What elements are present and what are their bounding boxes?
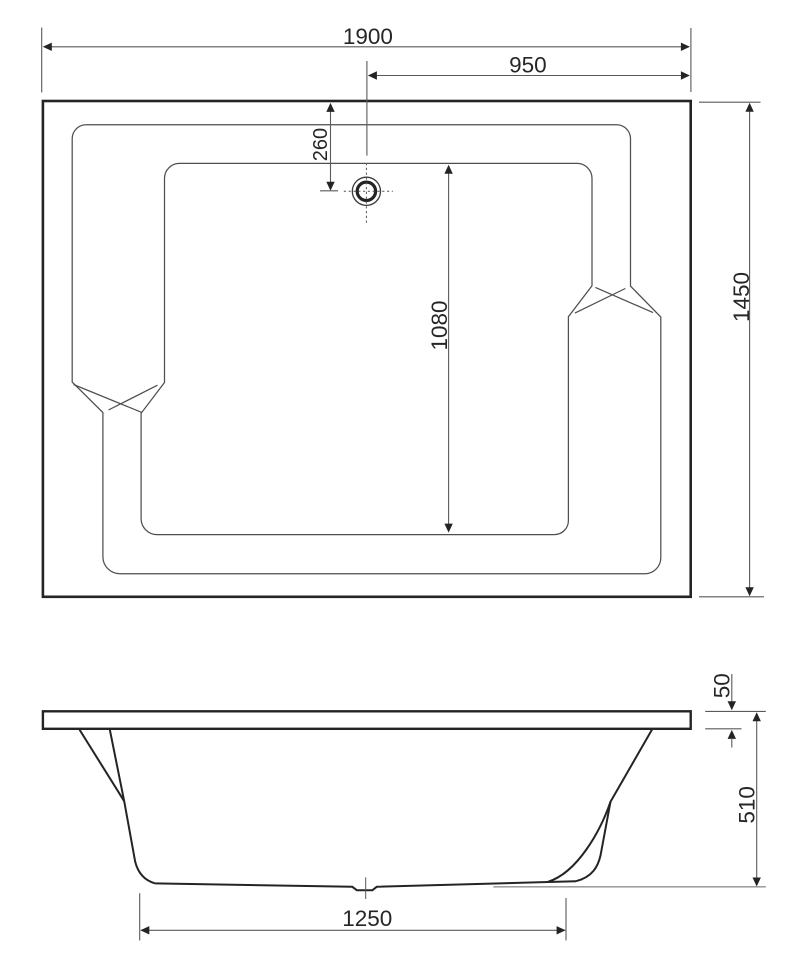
svg-text:1450: 1450 bbox=[729, 272, 754, 322]
svg-text:1900: 1900 bbox=[343, 24, 393, 49]
svg-text:1250: 1250 bbox=[342, 906, 392, 931]
svg-text:950: 950 bbox=[509, 52, 547, 77]
svg-text:510: 510 bbox=[734, 786, 759, 824]
svg-text:50: 50 bbox=[709, 673, 734, 698]
svg-text:260: 260 bbox=[310, 128, 332, 161]
svg-text:1080: 1080 bbox=[427, 300, 452, 350]
